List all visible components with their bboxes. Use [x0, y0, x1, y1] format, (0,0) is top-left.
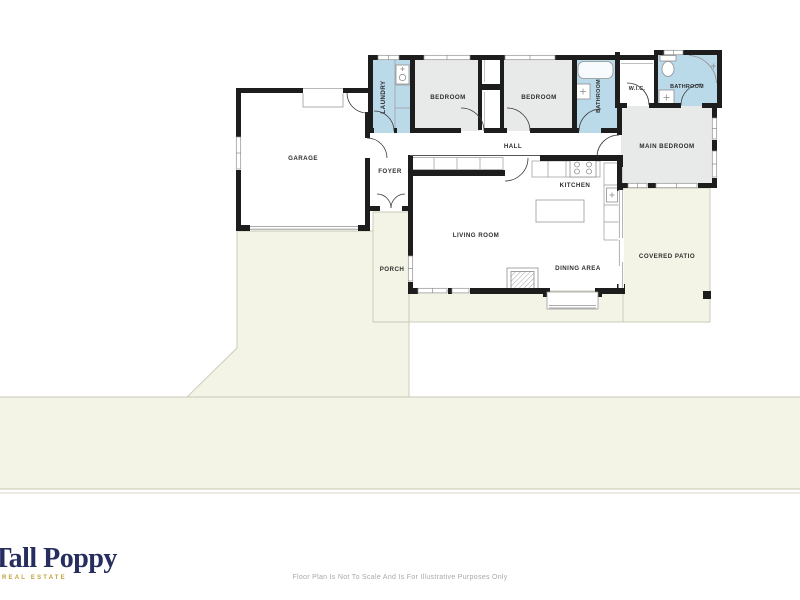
- bathroom2-sink-icon: [659, 90, 674, 105]
- room-label-covered-patio: COVERED PATIO: [639, 253, 695, 260]
- room-label-laundry: LAUNDRY: [380, 80, 387, 114]
- garage-storage: [303, 92, 343, 107]
- room-label-living-room: LIVING ROOM: [453, 232, 500, 239]
- room-label-bathroom1: BATHROOM: [596, 79, 602, 113]
- floor-plan-page: GARAGE LAUNDRY BEDROOM BEDROOM BATHROOM …: [0, 0, 800, 600]
- room-label-kitchen: KITCHEN: [560, 182, 591, 189]
- lot-areas: [0, 188, 800, 493]
- disclaimer-text: Floor Plan Is Not To Scale And Is For Il…: [0, 574, 800, 581]
- logo-text: Tall Poppy: [0, 545, 117, 573]
- room-label-bedroom2: BEDROOM: [521, 94, 556, 101]
- kitchen-island: [536, 200, 584, 222]
- room-label-wic: W.I.C.: [629, 86, 646, 92]
- floor-plan: GARAGE LAUNDRY BEDROOM BEDROOM BATHROOM …: [0, 0, 800, 600]
- room-label-porch: PORCH: [380, 266, 405, 273]
- driveway: [187, 212, 409, 397]
- bathroom1-sink-icon: [576, 84, 590, 99]
- washer-icon: [396, 65, 409, 84]
- room-label-bathroom2: BATHROOM: [670, 84, 704, 90]
- patio-pillar: [703, 291, 711, 299]
- room-label-bedroom1: BEDROOM: [430, 94, 465, 101]
- room-label-main-bedroom: MAIN BEDROOM: [639, 143, 694, 150]
- bay-window: [547, 292, 598, 309]
- hall-closet: [411, 158, 503, 170]
- stove-icon: [570, 159, 596, 177]
- room-label-garage: GARAGE: [288, 155, 318, 162]
- room-label-foyer: FOYER: [378, 168, 402, 175]
- bathtub-icon: [578, 62, 613, 79]
- room-label-dining-area: DINING AREA: [555, 265, 601, 272]
- room-label-hall: HALL: [504, 143, 522, 150]
- garage-door: [250, 227, 358, 230]
